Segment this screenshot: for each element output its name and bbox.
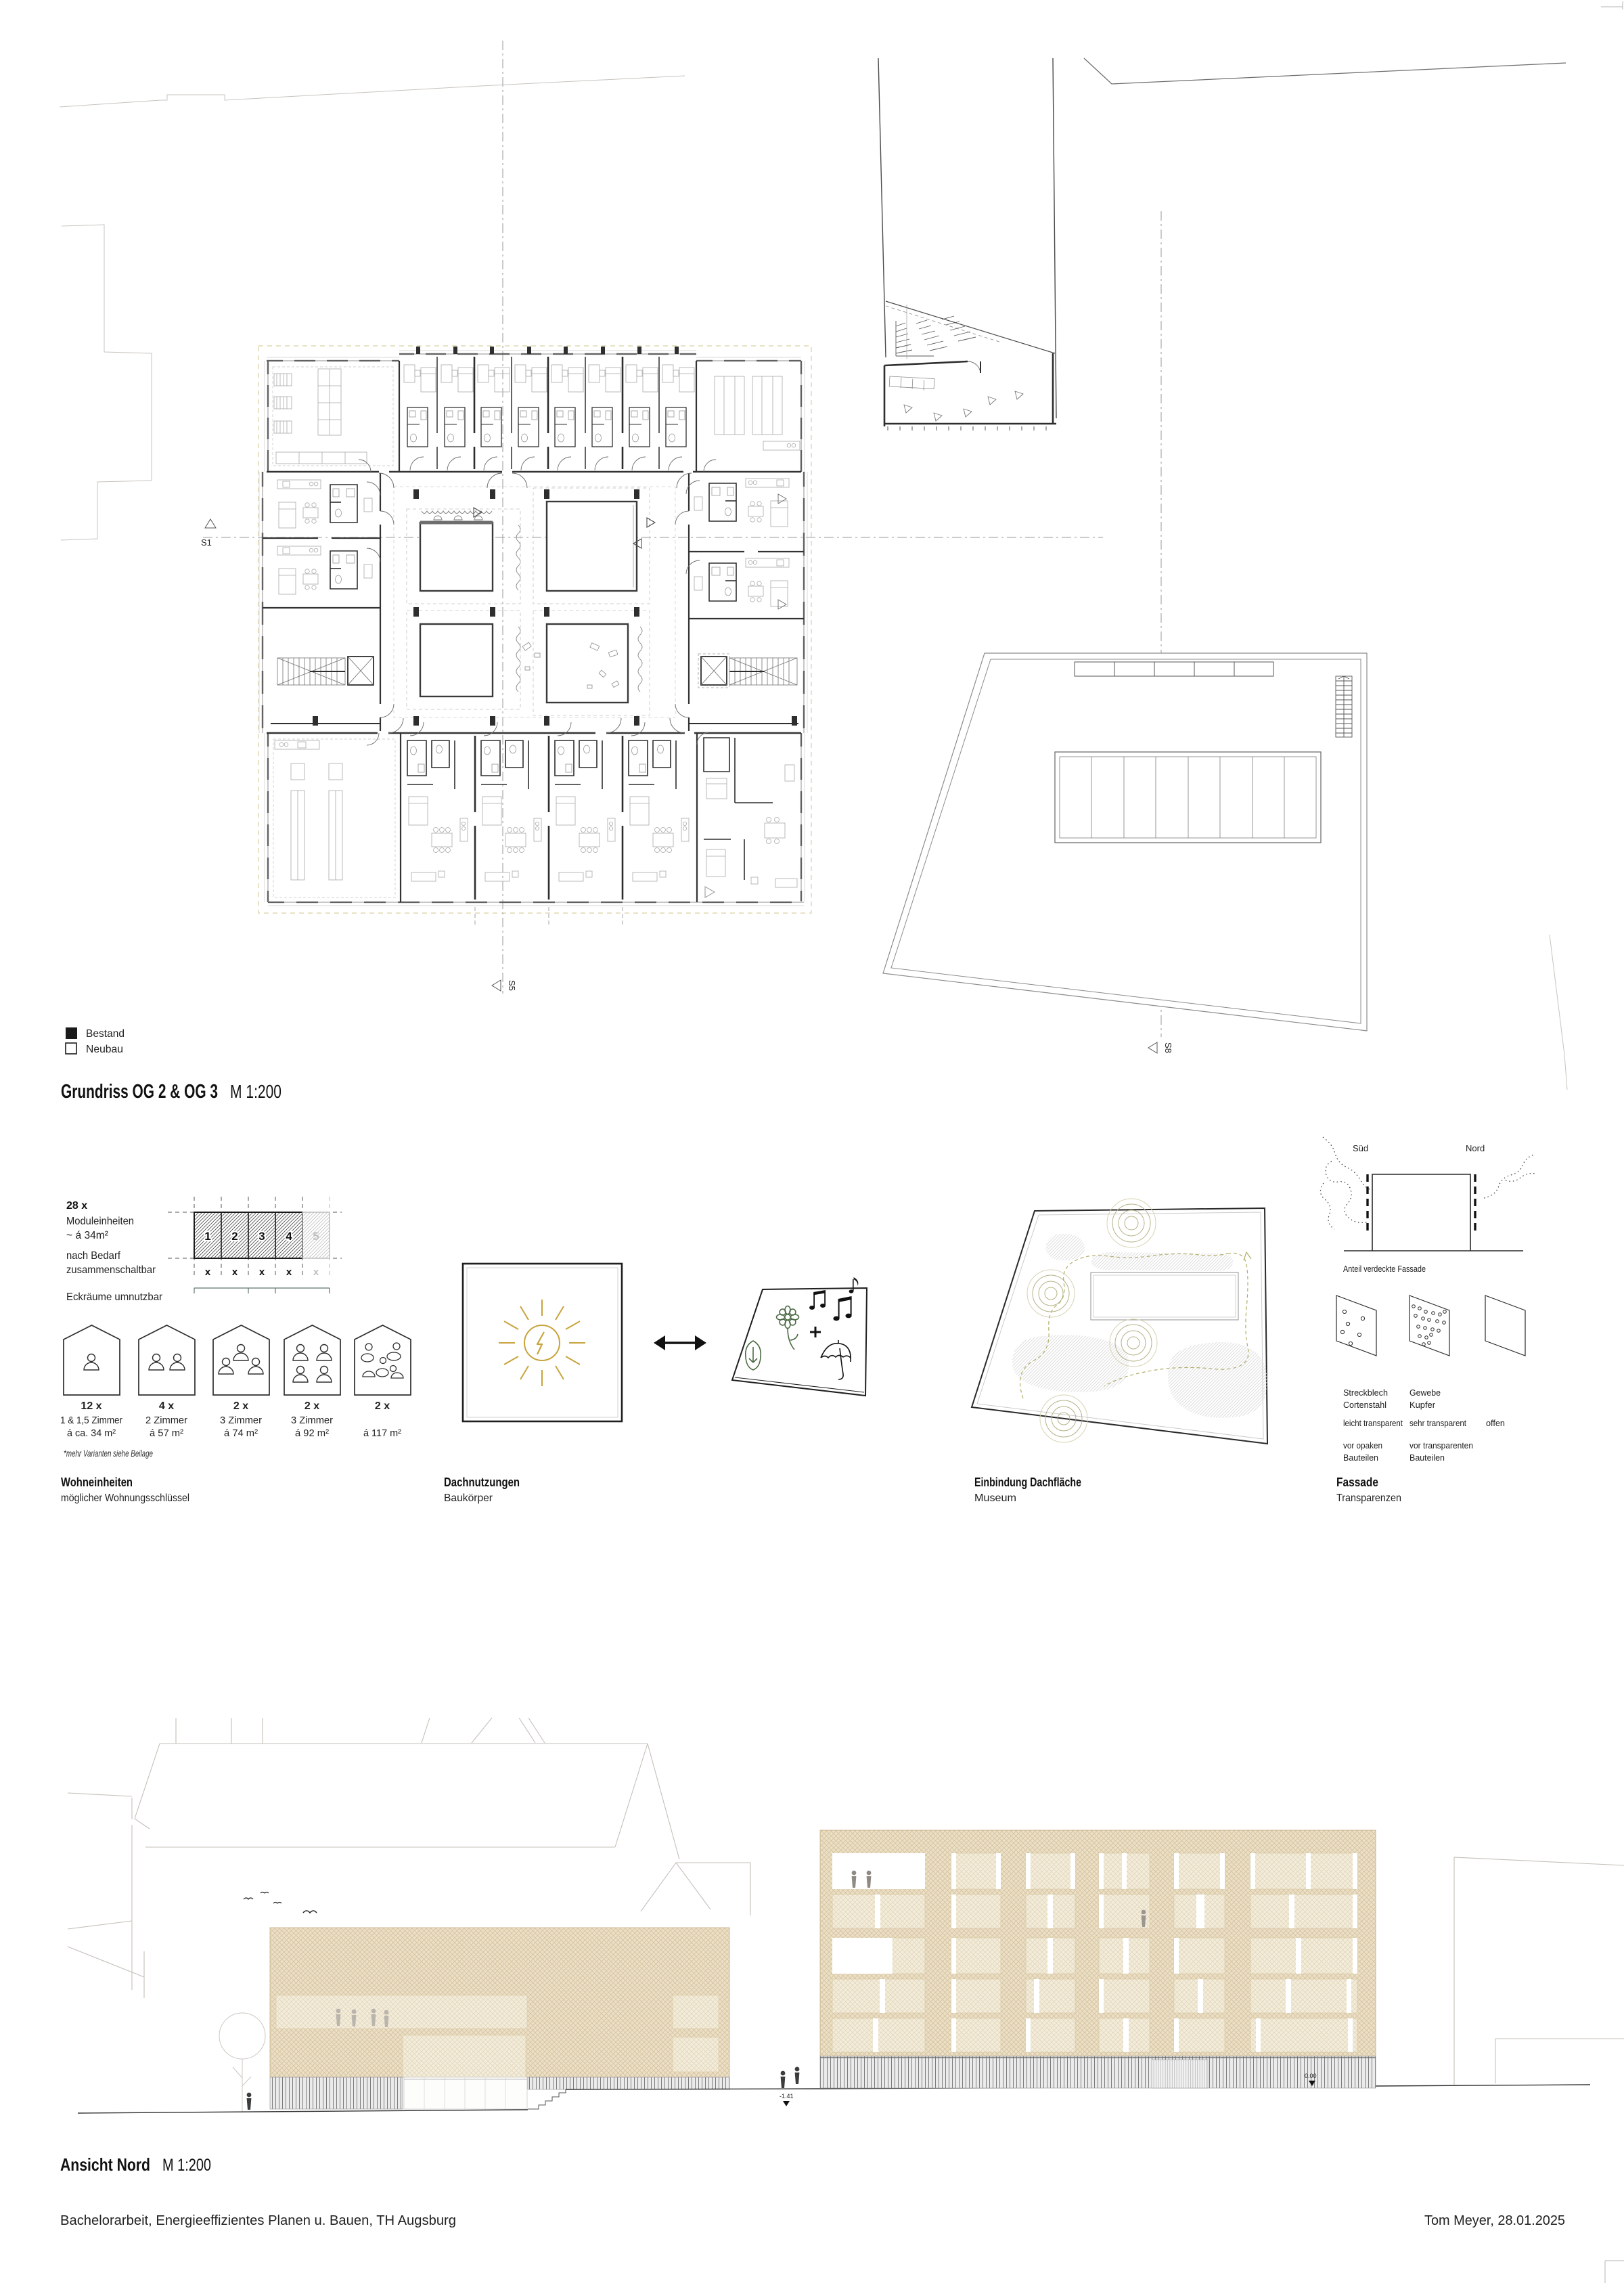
svg-text:x: x xyxy=(286,1266,292,1278)
svg-text:Süd: Süd xyxy=(1353,1143,1368,1153)
svg-text:Kupfer: Kupfer xyxy=(1409,1400,1436,1410)
svg-text:4: 4 xyxy=(286,1230,292,1243)
svg-text:vor opaken: vor opaken xyxy=(1343,1440,1382,1450)
svg-text:M 1:200: M 1:200 xyxy=(230,1081,281,1102)
svg-text:á 92 m²: á 92 m² xyxy=(295,1427,329,1439)
svg-text:Cortenstahl: Cortenstahl xyxy=(1343,1400,1386,1410)
svg-text:2 Zimmer: 2 Zimmer xyxy=(145,1415,187,1426)
svg-text:3 Zimmer: 3 Zimmer xyxy=(291,1415,333,1426)
svg-text:Bauteilen: Bauteilen xyxy=(1343,1453,1378,1463)
svg-text:nach Bedarf: nach Bedarf xyxy=(66,1250,121,1262)
svg-text:Wohneinheiten: Wohneinheiten xyxy=(61,1476,133,1489)
svg-text:S1: S1 xyxy=(201,537,212,548)
svg-text:offen: offen xyxy=(1486,1418,1505,1428)
svg-text:leicht transparent: leicht transparent xyxy=(1343,1418,1403,1428)
svg-text:Eckräume umnutzbar: Eckräume umnutzbar xyxy=(66,1291,163,1303)
svg-text:vor transparenten: vor transparenten xyxy=(1409,1440,1473,1450)
svg-text:Moduleinheiten: Moduleinheiten xyxy=(66,1216,134,1227)
svg-text:Transparenzen: Transparenzen xyxy=(1336,1492,1401,1504)
svg-text:Ansicht Nord: Ansicht Nord xyxy=(60,2154,150,2175)
svg-text:Museum: Museum xyxy=(974,1492,1016,1504)
svg-text:zusammenschaltbar: zusammenschaltbar xyxy=(66,1264,156,1276)
svg-text:Gewebe: Gewebe xyxy=(1409,1388,1441,1398)
svg-text:Baukörper: Baukörper xyxy=(444,1492,493,1504)
svg-text:Fassade: Fassade xyxy=(1336,1476,1378,1489)
svg-text:*mehr Varianten siehe Beilage: *mehr Varianten siehe Beilage xyxy=(64,1448,153,1459)
svg-text:Bestand: Bestand xyxy=(86,1028,125,1040)
svg-text:x: x xyxy=(205,1266,211,1278)
svg-text:Bachelorarbeit, Energieeffizie: Bachelorarbeit, Energieeffizientes Plane… xyxy=(60,2213,456,2228)
svg-text:sehr transparent: sehr transparent xyxy=(1409,1418,1466,1428)
svg-text:3 Zimmer: 3 Zimmer xyxy=(220,1415,262,1426)
svg-text:Einbindung Dachfläche: Einbindung Dachfläche xyxy=(974,1476,1081,1489)
svg-text:M 1:200: M 1:200 xyxy=(162,2156,211,2175)
svg-text:Anteil verdeckte Fassade: Anteil verdeckte Fassade xyxy=(1343,1264,1426,1274)
svg-text:-1.41: -1.41 xyxy=(780,2093,794,2100)
svg-text:Bauteilen: Bauteilen xyxy=(1409,1453,1445,1463)
svg-text:Nord: Nord xyxy=(1466,1143,1485,1153)
svg-text:5: 5 xyxy=(313,1230,319,1243)
svg-text:möglicher Wohnungsschlüssel: möglicher Wohnungsschlüssel xyxy=(61,1492,189,1504)
svg-text:1: 1 xyxy=(204,1230,210,1243)
svg-text:S5: S5 xyxy=(507,980,517,991)
svg-text:x: x xyxy=(259,1266,265,1278)
svg-text:2 x: 2 x xyxy=(233,1400,248,1412)
svg-text:2: 2 xyxy=(231,1230,238,1243)
svg-text:0.00: 0.00 xyxy=(1305,2073,1317,2079)
svg-text:4 x: 4 x xyxy=(159,1400,174,1412)
svg-text:12 x: 12 x xyxy=(81,1400,101,1412)
svg-text:2 x: 2 x xyxy=(375,1400,390,1412)
svg-text:á 57 m²: á 57 m² xyxy=(150,1427,183,1439)
svg-text:Grundriss OG 2 & OG 3: Grundriss OG 2 & OG 3 xyxy=(61,1081,218,1103)
svg-text:á ca. 34 m²: á ca. 34 m² xyxy=(67,1427,116,1439)
svg-text:Streckblech: Streckblech xyxy=(1343,1388,1388,1398)
svg-text:Tom Meyer, 28.01.2025: Tom Meyer, 28.01.2025 xyxy=(1424,2213,1565,2228)
svg-text:x: x xyxy=(232,1266,238,1278)
svg-text:á 117 m²: á 117 m² xyxy=(363,1427,401,1439)
svg-text:2 x: 2 x xyxy=(304,1400,319,1412)
svg-text:x: x xyxy=(313,1266,319,1278)
svg-text:28 x: 28 x xyxy=(66,1200,87,1212)
svg-text:á 74 m²: á 74 m² xyxy=(224,1427,258,1439)
svg-text:Dachnutzungen: Dachnutzungen xyxy=(444,1476,520,1489)
svg-text:S8: S8 xyxy=(1163,1042,1173,1053)
svg-text:~ á 34m²: ~ á 34m² xyxy=(66,1230,109,1241)
svg-text:Neubau: Neubau xyxy=(86,1044,123,1055)
svg-text:3: 3 xyxy=(258,1230,265,1243)
svg-text:1 & 1,5 Zimmer: 1 & 1,5 Zimmer xyxy=(60,1415,122,1426)
